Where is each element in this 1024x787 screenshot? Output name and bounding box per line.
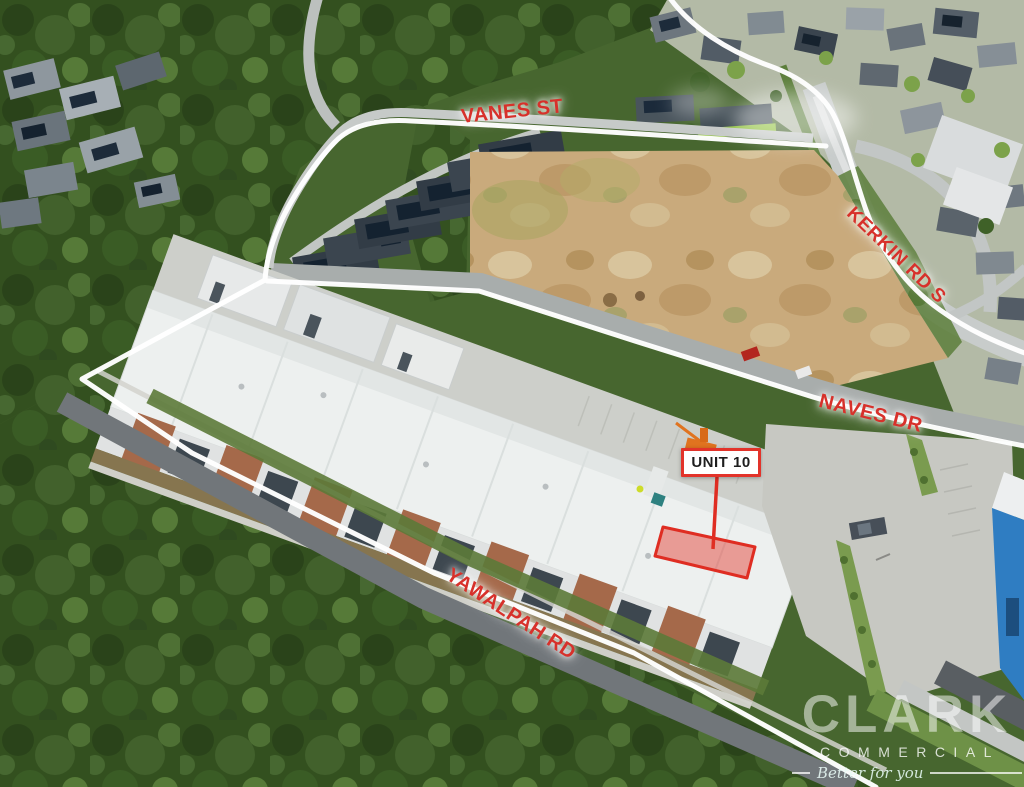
unit10-callout-box: UNIT 10 bbox=[681, 448, 761, 477]
aerial-photo-page: VANES ST KERKIN RD S NAVES DR YAWALPAH R… bbox=[0, 0, 1024, 787]
watermark-division: COMMERCIAL bbox=[792, 744, 1022, 760]
watermark-brand: CLARK bbox=[792, 688, 1022, 742]
worker bbox=[637, 486, 644, 493]
watermark-tagline-row: Better for you bbox=[792, 764, 1022, 782]
lens-flare bbox=[733, 92, 857, 144]
clark-commercial-watermark: CLARK COMMERCIAL Better for you bbox=[792, 688, 1022, 782]
watermark-tagline: Better for you bbox=[817, 764, 923, 782]
